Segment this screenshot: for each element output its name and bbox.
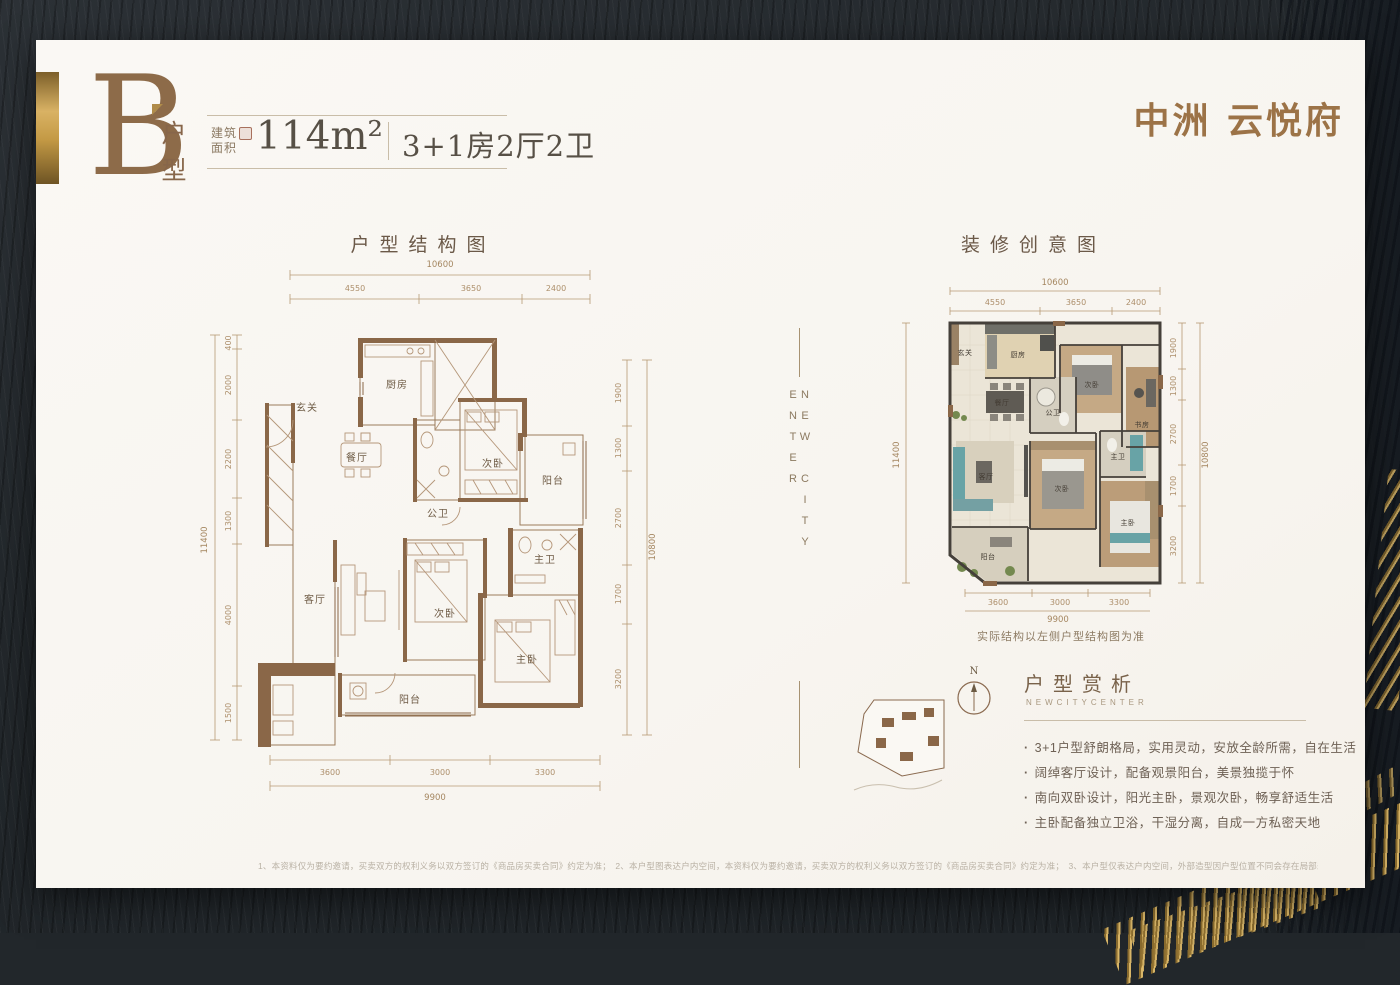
dim-left-seg: 2000 <box>224 375 233 395</box>
dim-right-seg: 2700 <box>614 508 623 528</box>
right-plan-title: 装修创意图 <box>916 230 1151 257</box>
room-label-foyer: 玄关 <box>958 348 973 357</box>
dim-left-seg: 2200 <box>224 449 233 469</box>
room-label-bedroom2: 次卧 <box>482 457 504 470</box>
floorplan-structure-svg: 10600 4550 3650 2400 11400 400 2000 2200… <box>195 255 675 805</box>
dim-top-seg: 4550 <box>345 284 365 293</box>
room-label-kitchen: 厨房 <box>1011 350 1026 359</box>
layout-value: 3+1房2厅2卫 <box>402 123 595 165</box>
dim-right-seg: 1900 <box>614 383 623 403</box>
unit-type-label: 户型 <box>154 120 190 194</box>
dim-left-seg: 4000 <box>224 605 233 625</box>
divider-line-top <box>799 328 800 377</box>
center-divider: NEW CITY ENTER <box>788 328 810 768</box>
analysis-bullet: 主卧配备独立卫浴，干湿分离，自成一方私密天地 <box>1024 811 1324 836</box>
analysis-rule <box>1024 720 1306 721</box>
room-label-living: 客厅 <box>979 472 994 481</box>
dim-top-seg: 2400 <box>546 284 566 293</box>
walls <box>258 338 583 747</box>
room-label-bedroom3: 次卧 <box>1055 484 1070 493</box>
dim-left-seg: 1300 <box>224 511 233 531</box>
compass-n-label: N <box>970 666 979 677</box>
dim-right-seg: 3200 <box>614 669 623 689</box>
room-label-balcony-side: 阳台 <box>542 474 564 487</box>
poster-card: B 户型 建筑面积 114m² 3+1房2厅2卫 中洲 云悦府 户型结构图 装修… <box>36 40 1365 888</box>
header-divider <box>388 122 389 160</box>
dim-left-total: 11400 <box>892 441 902 468</box>
dim-left-seg: 1500 <box>224 703 233 723</box>
room-label-guest-bath: 公卫 <box>1046 409 1061 417</box>
poster-root: { "header": { "unit_letter": "B", "unit_… <box>0 0 1400 933</box>
room-label-kitchen: 厨房 <box>386 378 408 391</box>
dim-bottom-seg: 3000 <box>1050 598 1070 607</box>
gold-triangle-icon <box>152 104 163 115</box>
dim-bottom-seg: 3000 <box>430 768 450 777</box>
room-label-master-bedroom: 主卧 <box>1121 518 1136 527</box>
header-rule-bottom <box>207 168 507 169</box>
dim-top-total: 10600 <box>1041 278 1068 288</box>
analysis-title: 户型赏析 <box>1024 668 1140 697</box>
analysis-bullet: 3+1户型舒朗格局，实用灵动，安放全龄所需，自在生活 <box>1024 736 1324 761</box>
divider-line-bottom <box>799 681 800 768</box>
room-label-study: 书房 <box>1135 420 1150 429</box>
dim-right-seg: 1300 <box>614 438 623 458</box>
gold-accent-bar <box>36 72 59 184</box>
dim-right-total: 10800 <box>648 533 658 560</box>
dim-bottom-seg: 3600 <box>320 768 340 777</box>
room-label-balcony-main: 阳台 <box>981 552 996 561</box>
divider-vertical-text: NEW CITY ENTER <box>787 389 811 668</box>
room-label-living: 客厅 <box>304 593 326 606</box>
brand-logo: 中洲 云悦府 <box>1114 92 1344 144</box>
room-label-bedroom2: 次卧 <box>1085 380 1100 389</box>
decor-plan-note: 实际结构以左侧户型结构图为准 <box>896 628 1226 644</box>
room-label-balcony-main: 阳台 <box>399 693 421 706</box>
room-label-guest-bath: 公卫 <box>427 509 449 520</box>
dim-right-seg: 1700 <box>614 584 623 604</box>
analysis-bullets: 3+1户型舒朗格局，实用灵动，安放全龄所需，自在生活 阔绰客厅设计，配备观景阳台… <box>1024 736 1324 836</box>
room-label-bedroom3: 次卧 <box>434 607 456 620</box>
dim-bottom-seg: 3300 <box>535 768 555 777</box>
dim-left-seg: 400 <box>224 335 233 350</box>
area-value: 114m² <box>256 114 383 159</box>
analysis-bullet: 南向双卧设计，阳光主卧，景观次卧，畅享舒适生活 <box>1024 786 1324 811</box>
disclaimer-text: 1、本资料仅为要约邀请，买卖双方的权利义务以双方签订的《商品房买卖合同》约定为准… <box>258 860 1318 872</box>
dim-bottom-seg: 3300 <box>1109 598 1129 607</box>
left-plan-title: 户型结构图 <box>303 230 543 257</box>
dim-top-total: 10600 <box>426 260 453 270</box>
analysis-bullet: 阔绰客厅设计，配备观景阳台，美景独揽于怀 <box>1024 761 1324 786</box>
room-label-master-bath: 主卫 <box>1111 452 1126 461</box>
dim-left-total: 11400 <box>200 526 210 553</box>
room-label-dining: 餐厅 <box>346 451 368 464</box>
dim-bottom-total: 9900 <box>1047 615 1069 625</box>
dim-top-seg: 3650 <box>1066 298 1086 307</box>
dim-top-seg: 2400 <box>1126 298 1146 307</box>
dim-bottom-total: 9900 <box>424 793 446 803</box>
floorplan-decor-svg: 10600 4550 3650 2400 11400 1900 1300 270… <box>890 275 1230 625</box>
dim-right-seg: 2700 <box>1169 424 1178 444</box>
building-keyplan <box>844 692 964 802</box>
dim-top-seg: 3650 <box>461 284 481 293</box>
area-label: 建筑面积 <box>211 126 237 156</box>
room-outlines <box>260 340 583 745</box>
dim-right-seg: 1300 <box>1169 376 1178 396</box>
room-label-foyer: 玄关 <box>296 401 318 414</box>
dim-right-seg: 1700 <box>1169 476 1178 496</box>
room-label-master-bedroom: 主卧 <box>516 653 538 666</box>
analysis-subtitle: NEWCITYCENTER <box>1026 698 1148 707</box>
furnished-plan: 玄关 厨房 餐厅 公卫 次卧 书房 客厅 次卧 主卫 主卧 阳台 <box>948 321 1163 586</box>
dim-right-total: 10800 <box>1201 441 1211 468</box>
dim-top-seg: 4550 <box>985 298 1005 307</box>
room-label-master-bath: 主卫 <box>534 554 556 566</box>
seal-icon <box>239 127 252 140</box>
dim-bottom-seg: 3600 <box>988 598 1008 607</box>
dim-right-seg: 1900 <box>1169 338 1178 358</box>
dim-right-seg: 3200 <box>1169 536 1178 556</box>
room-label-dining: 餐厅 <box>995 398 1010 407</box>
